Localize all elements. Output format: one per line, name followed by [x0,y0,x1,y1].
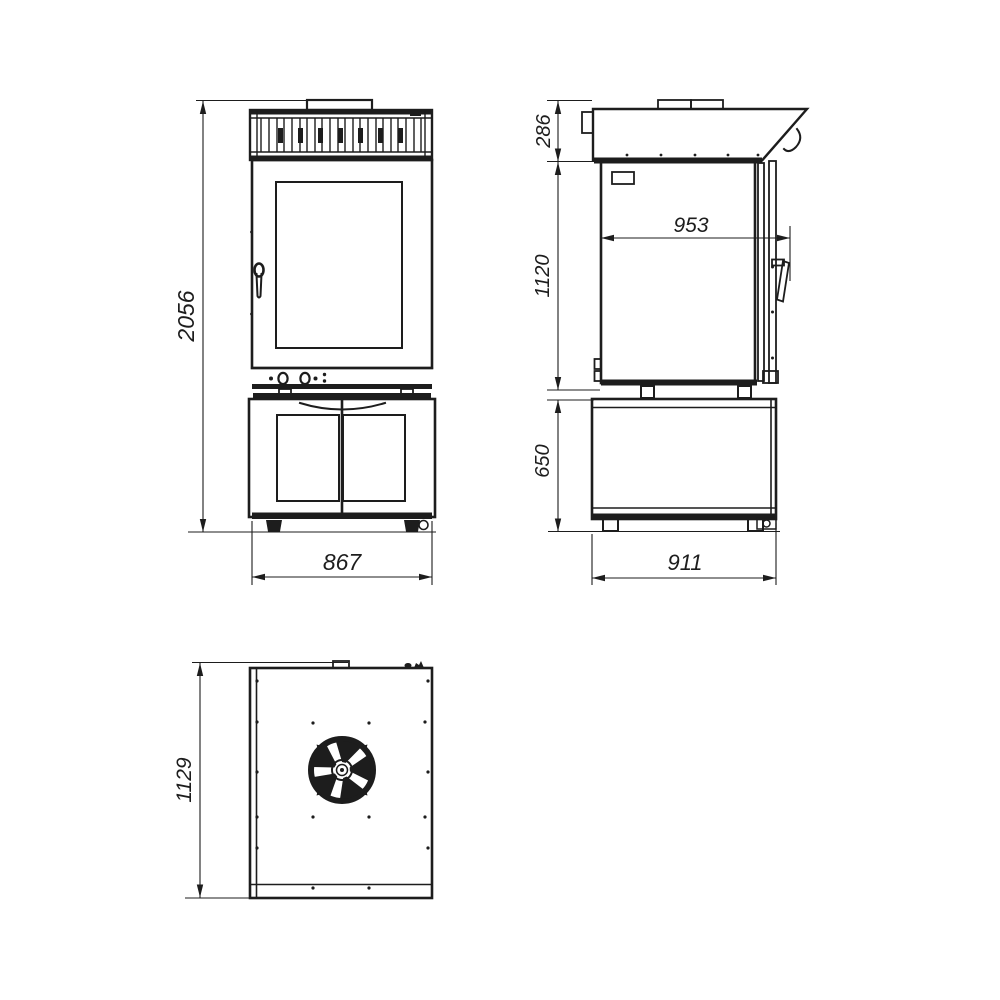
cabinet-base-edge [252,513,432,520]
hinge-dot [250,313,253,316]
label-overall-height: 2056 [173,290,199,342]
drawing-canvas: 2056 867 286 1120 650 953 911 1129 [0,0,1000,1000]
grille-top-rail [251,110,431,115]
body-bottom-band [601,380,757,386]
indicator-lamp [269,377,273,381]
indicator-dot [323,379,326,382]
hinge-dot [250,231,253,234]
indicator-lamp [314,377,318,381]
label-overall-depth: 1129 [173,757,196,802]
indicator-dot [323,373,326,376]
paper-background [0,0,1000,1000]
technical-drawing: 2056 867 286 1120 650 953 911 1129 [0,0,1000,1000]
label-base-height: 650 [532,444,554,477]
cabinet-foot [404,520,420,532]
label-body-height: 1120 [532,254,554,297]
label-depth-over-handle: 953 [673,214,708,237]
cabinet-foot [266,520,282,532]
grille-label-mark [410,112,421,117]
label-hood-height: 286 [533,113,555,148]
label-front-width: 867 [323,549,363,575]
label-base-depth: 911 [667,550,702,575]
